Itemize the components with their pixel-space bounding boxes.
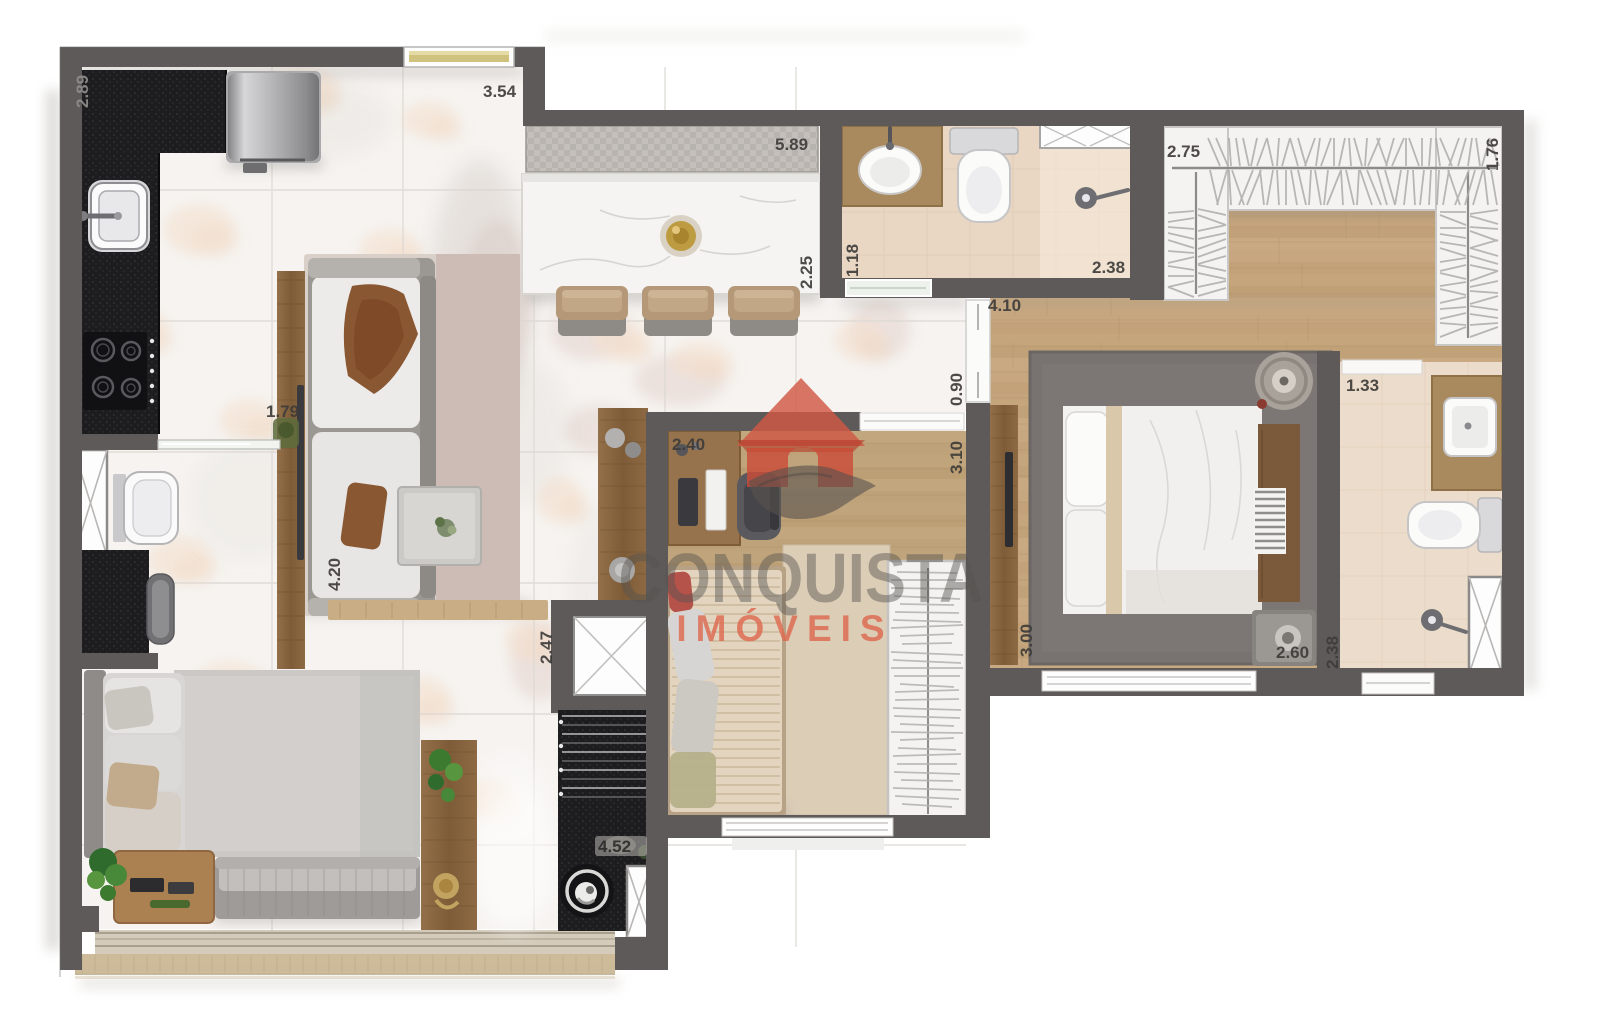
svg-text:3.54: 3.54: [483, 82, 517, 101]
svg-text:0.90: 0.90: [947, 373, 966, 406]
svg-text:1.33: 1.33: [1346, 376, 1379, 395]
svg-text:2.40: 2.40: [672, 435, 705, 454]
svg-text:1.18: 1.18: [843, 244, 862, 277]
svg-text:2.38: 2.38: [1092, 258, 1125, 277]
svg-text:2.60: 2.60: [1276, 643, 1309, 662]
svg-text:5.89: 5.89: [775, 135, 808, 154]
svg-text:3.00: 3.00: [1017, 624, 1036, 657]
svg-text:1.79: 1.79: [266, 402, 299, 421]
svg-text:4.10: 4.10: [988, 296, 1021, 315]
svg-text:CONQUISTA: CONQUISTA: [619, 538, 984, 617]
svg-text:2.25: 2.25: [797, 256, 816, 289]
svg-text:2.47: 2.47: [537, 631, 556, 664]
svg-text:2.75: 2.75: [1167, 142, 1200, 161]
svg-text:IMÓVEIS: IMÓVEIS: [676, 607, 893, 649]
svg-text:2.38: 2.38: [1323, 636, 1342, 669]
svg-text:3.10: 3.10: [947, 441, 966, 474]
svg-text:1.76: 1.76: [1483, 138, 1502, 171]
svg-text:4.52: 4.52: [598, 837, 631, 856]
svg-text:4.20: 4.20: [325, 558, 344, 591]
svg-text:2.89: 2.89: [73, 75, 92, 108]
